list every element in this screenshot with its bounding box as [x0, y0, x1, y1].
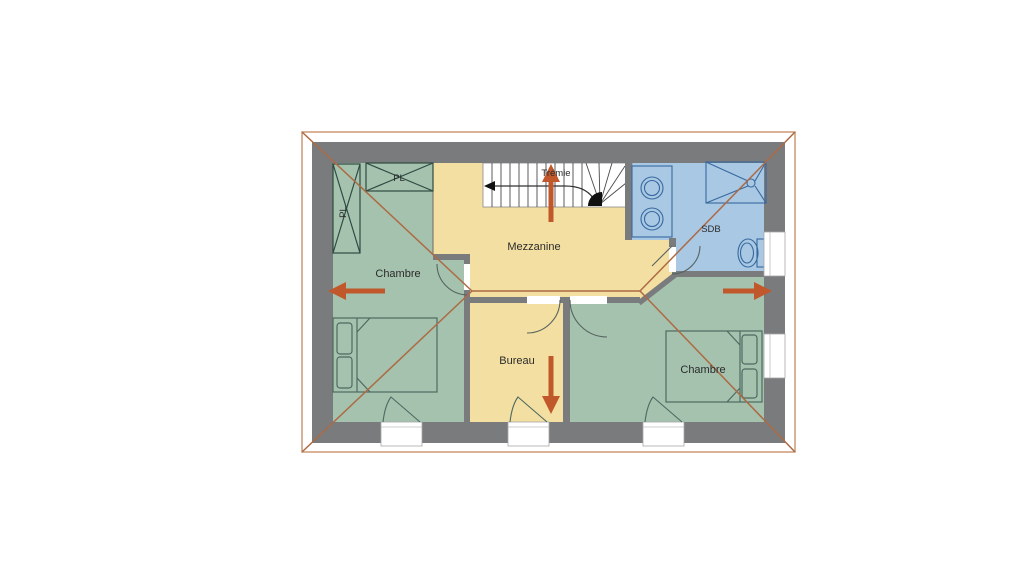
wall-corridor-1: [464, 297, 527, 303]
wall-corridor-2: [560, 297, 570, 303]
window: [381, 422, 422, 446]
window: [643, 422, 684, 446]
label-chambre-right: Chambre: [680, 364, 725, 376]
wall-bureau-right: [563, 303, 570, 422]
window: [764, 232, 785, 276]
label-sdb: SDB: [701, 224, 721, 235]
opening-bureau: [527, 296, 560, 304]
opening-chambre-right: [570, 296, 607, 304]
wall-chambre-door-jamb-top: [464, 260, 470, 264]
wall-stair-sdb: [625, 163, 632, 240]
window: [764, 334, 785, 378]
label-chambre-left: Chambre: [375, 268, 420, 280]
floor-plan: Chambre Mezzanine Bureau Chambre SDB Tré…: [0, 0, 1024, 576]
label-mezzanine: Mezzanine: [507, 241, 560, 253]
wall-corridor-3: [607, 297, 640, 303]
wall-bureau-left: [464, 303, 470, 422]
wall-sdb-door-jamb: [669, 238, 676, 248]
window: [508, 422, 549, 446]
wall-sdb-bottom: [672, 271, 764, 277]
label-closet-horizontal: PL: [393, 173, 405, 184]
label-closet-vertical: PL: [338, 206, 349, 218]
label-tremie: Trémie: [541, 168, 570, 179]
label-bureau: Bureau: [499, 355, 534, 367]
